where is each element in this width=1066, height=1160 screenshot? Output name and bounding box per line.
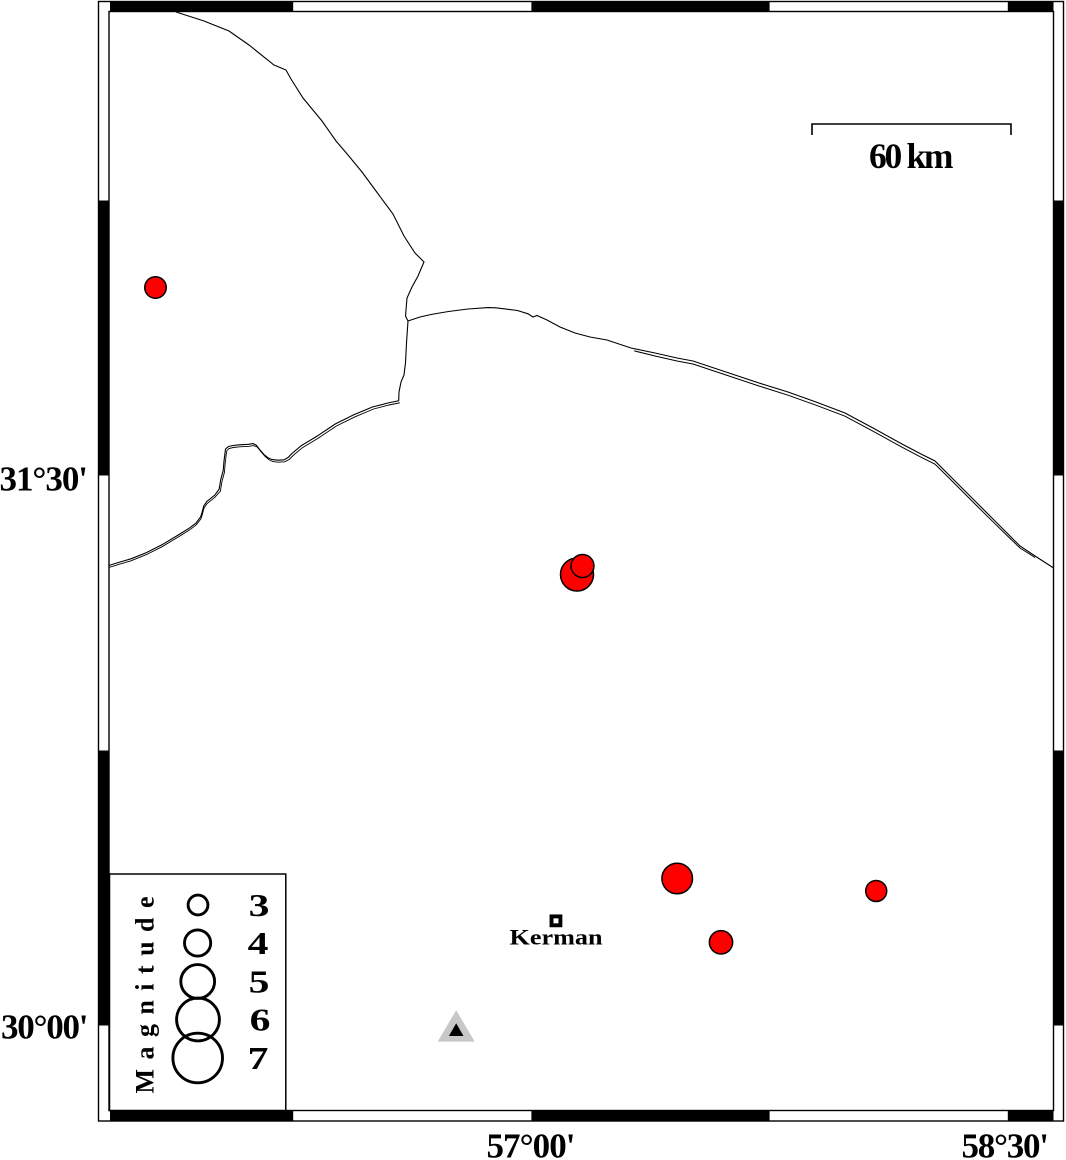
svg-text:57°00': 57°00' — [487, 1127, 576, 1160]
svg-text:6: 6 — [250, 1003, 271, 1038]
svg-text:4: 4 — [248, 926, 269, 961]
svg-text:60 km: 60 km — [869, 136, 954, 176]
svg-text:31°30': 31°30' — [0, 460, 88, 499]
svg-text:3: 3 — [249, 888, 270, 923]
svg-text:Kerman: Kerman — [510, 925, 604, 950]
svg-text:5: 5 — [249, 965, 270, 1000]
svg-text:58°30': 58°30' — [962, 1127, 1050, 1160]
svg-text:7: 7 — [248, 1041, 269, 1076]
svg-text:30°00': 30°00' — [1, 1008, 89, 1047]
